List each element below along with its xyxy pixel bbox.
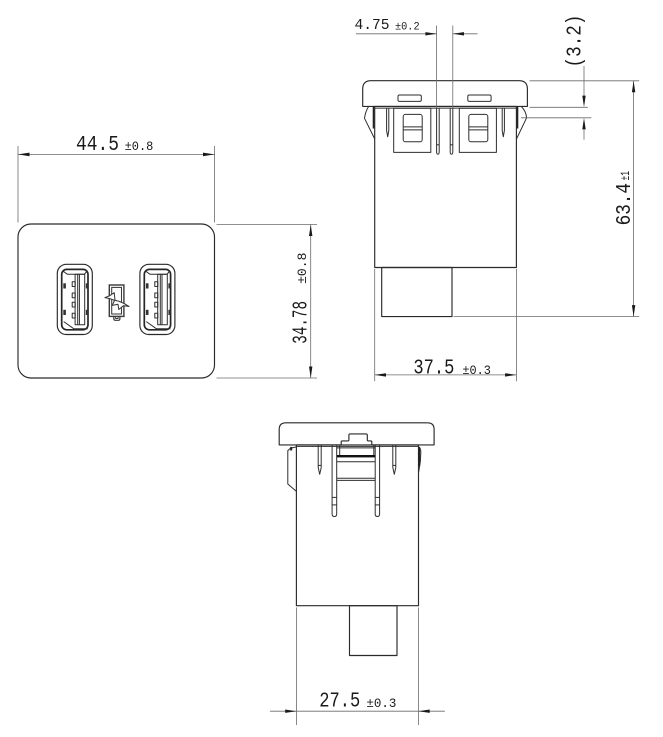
svg-text:63.4: 63.4 bbox=[613, 183, 637, 225]
svg-text:±0.8: ±0.8 bbox=[125, 139, 154, 154]
svg-text:±0.3: ±0.3 bbox=[366, 696, 396, 711]
svg-text:44.5: 44.5 bbox=[76, 133, 119, 157]
svg-text:±1: ±1 bbox=[619, 171, 633, 181]
svg-text:±0.3: ±0.3 bbox=[462, 363, 491, 378]
svg-text:4.75: 4.75 bbox=[355, 16, 390, 34]
svg-text:±0.8: ±0.8 bbox=[295, 253, 310, 284]
svg-text:37.5: 37.5 bbox=[413, 356, 454, 380]
svg-text:27.5: 27.5 bbox=[319, 690, 360, 714]
svg-text:(3.2): (3.2) bbox=[564, 15, 588, 68]
svg-text:34.78: 34.78 bbox=[290, 301, 314, 344]
svg-text:±0.2: ±0.2 bbox=[395, 21, 420, 33]
